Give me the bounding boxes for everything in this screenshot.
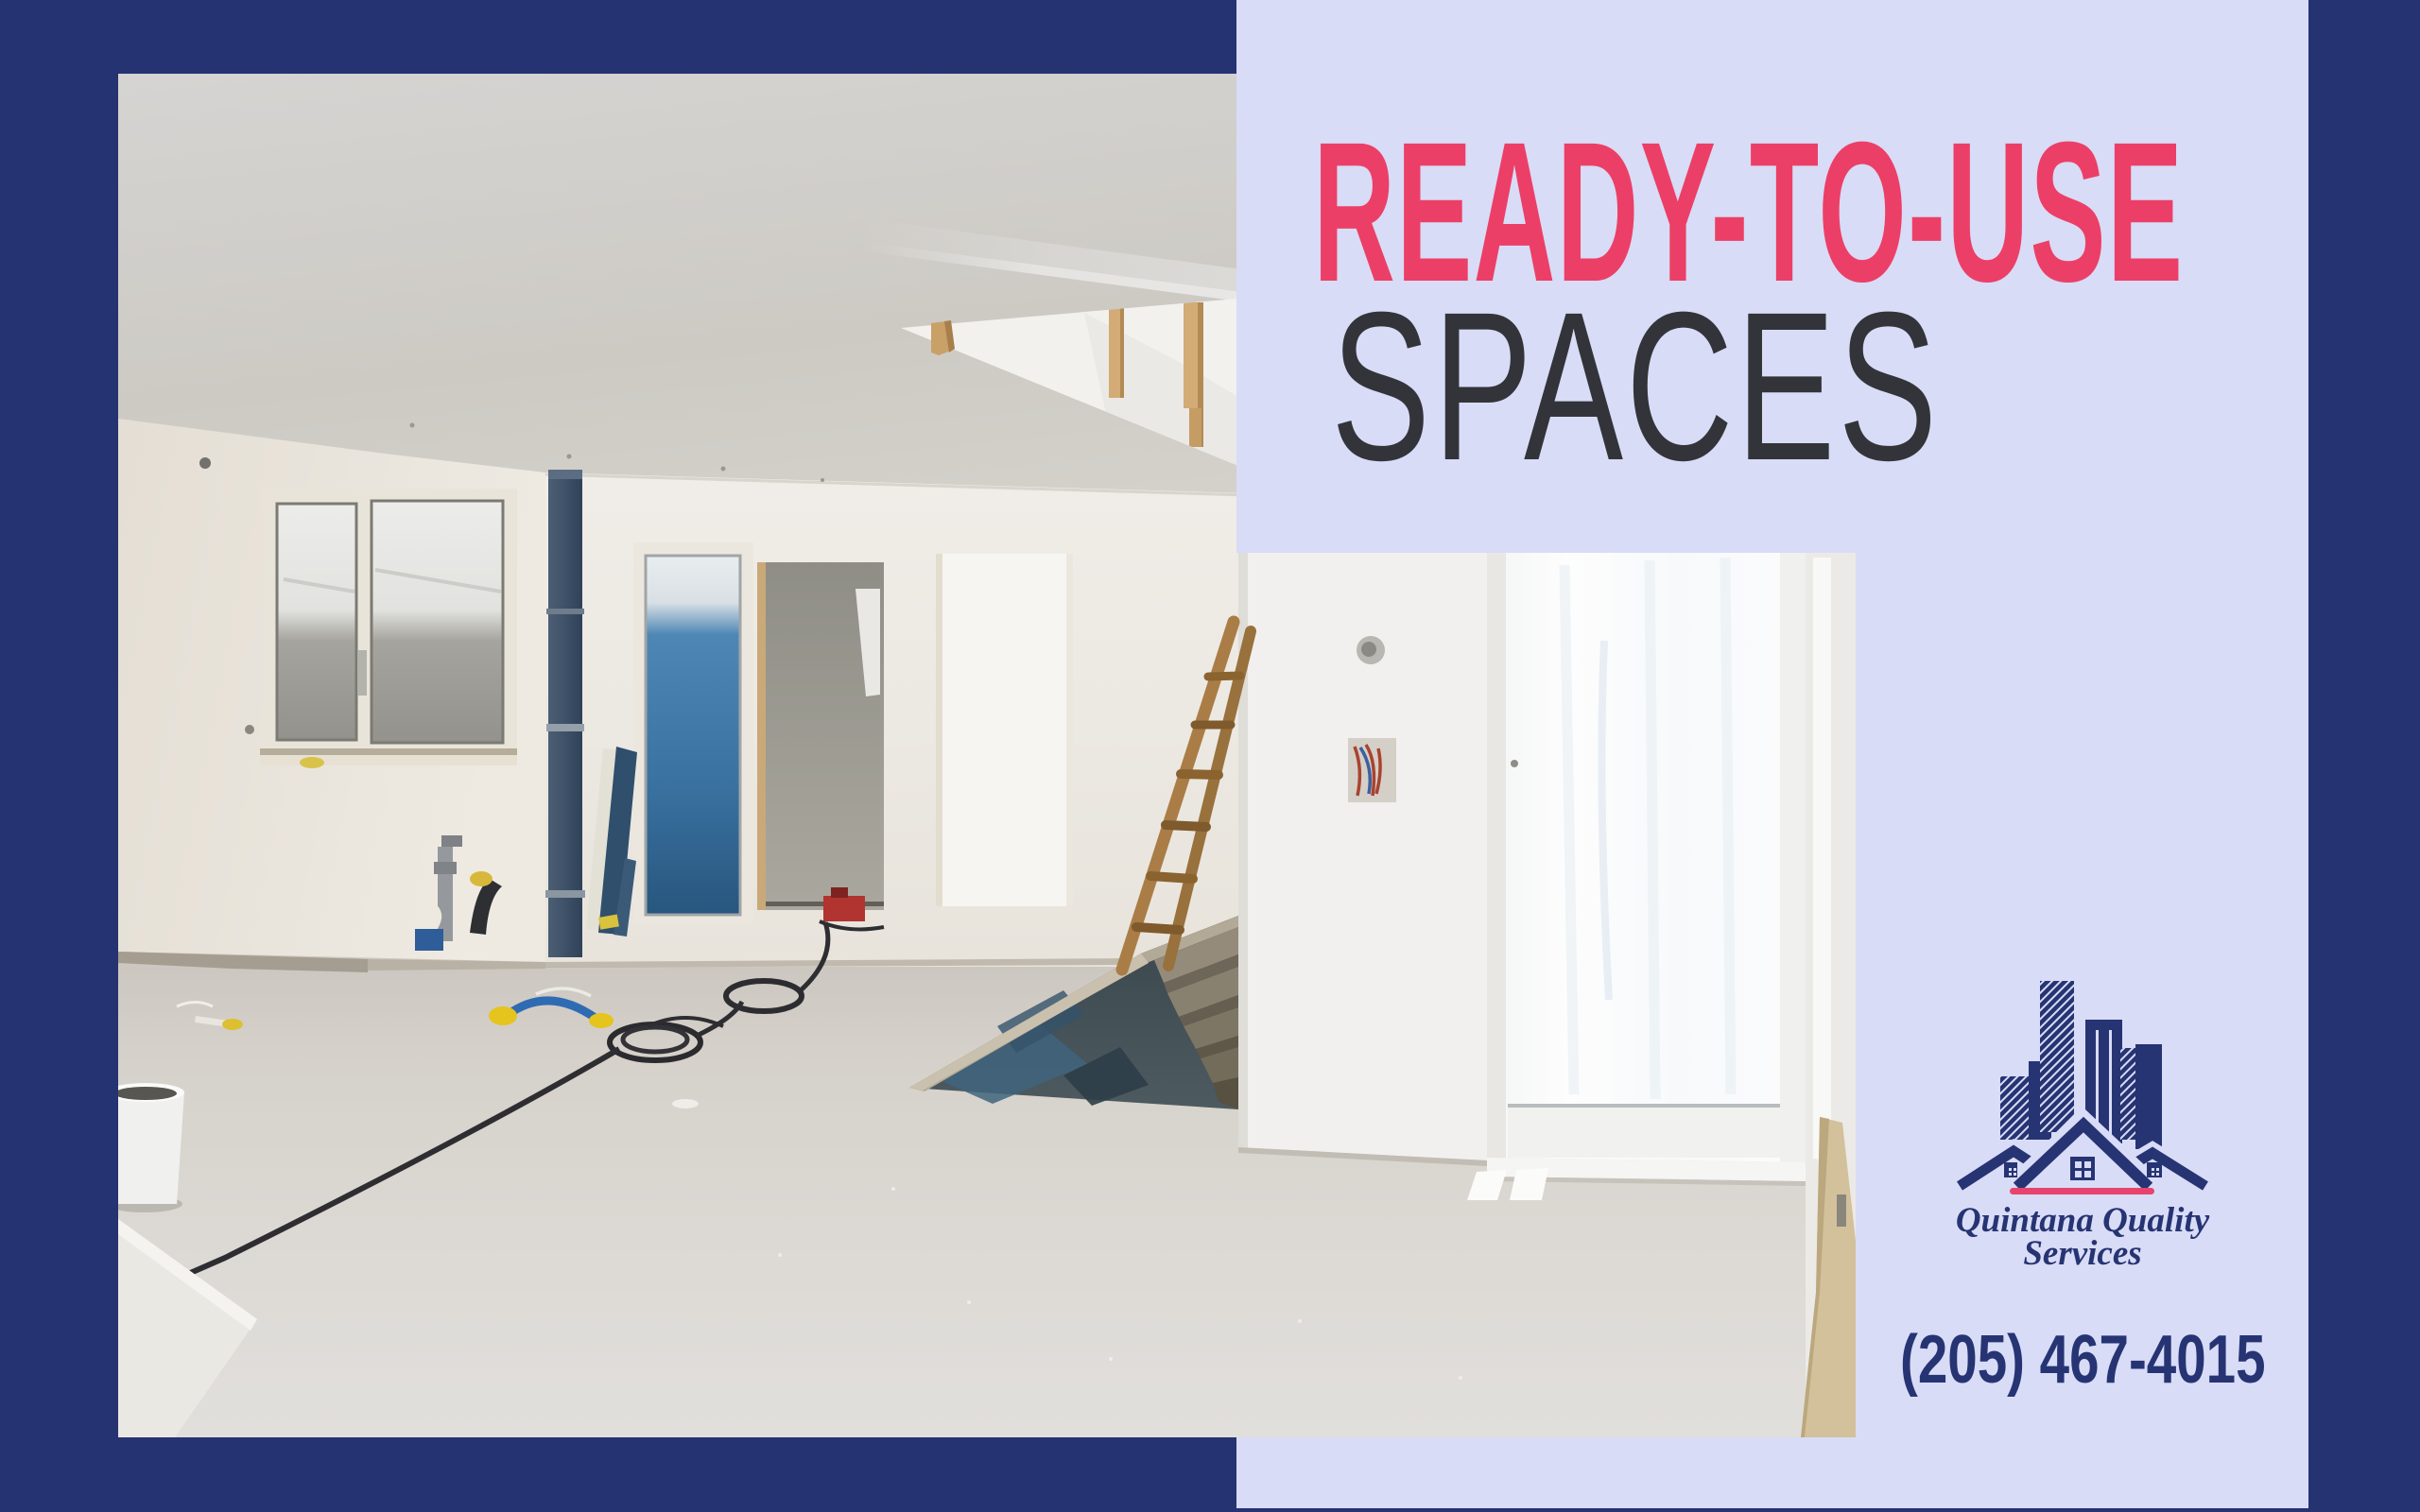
svg-text:Services: Services [2023,1234,2141,1273]
